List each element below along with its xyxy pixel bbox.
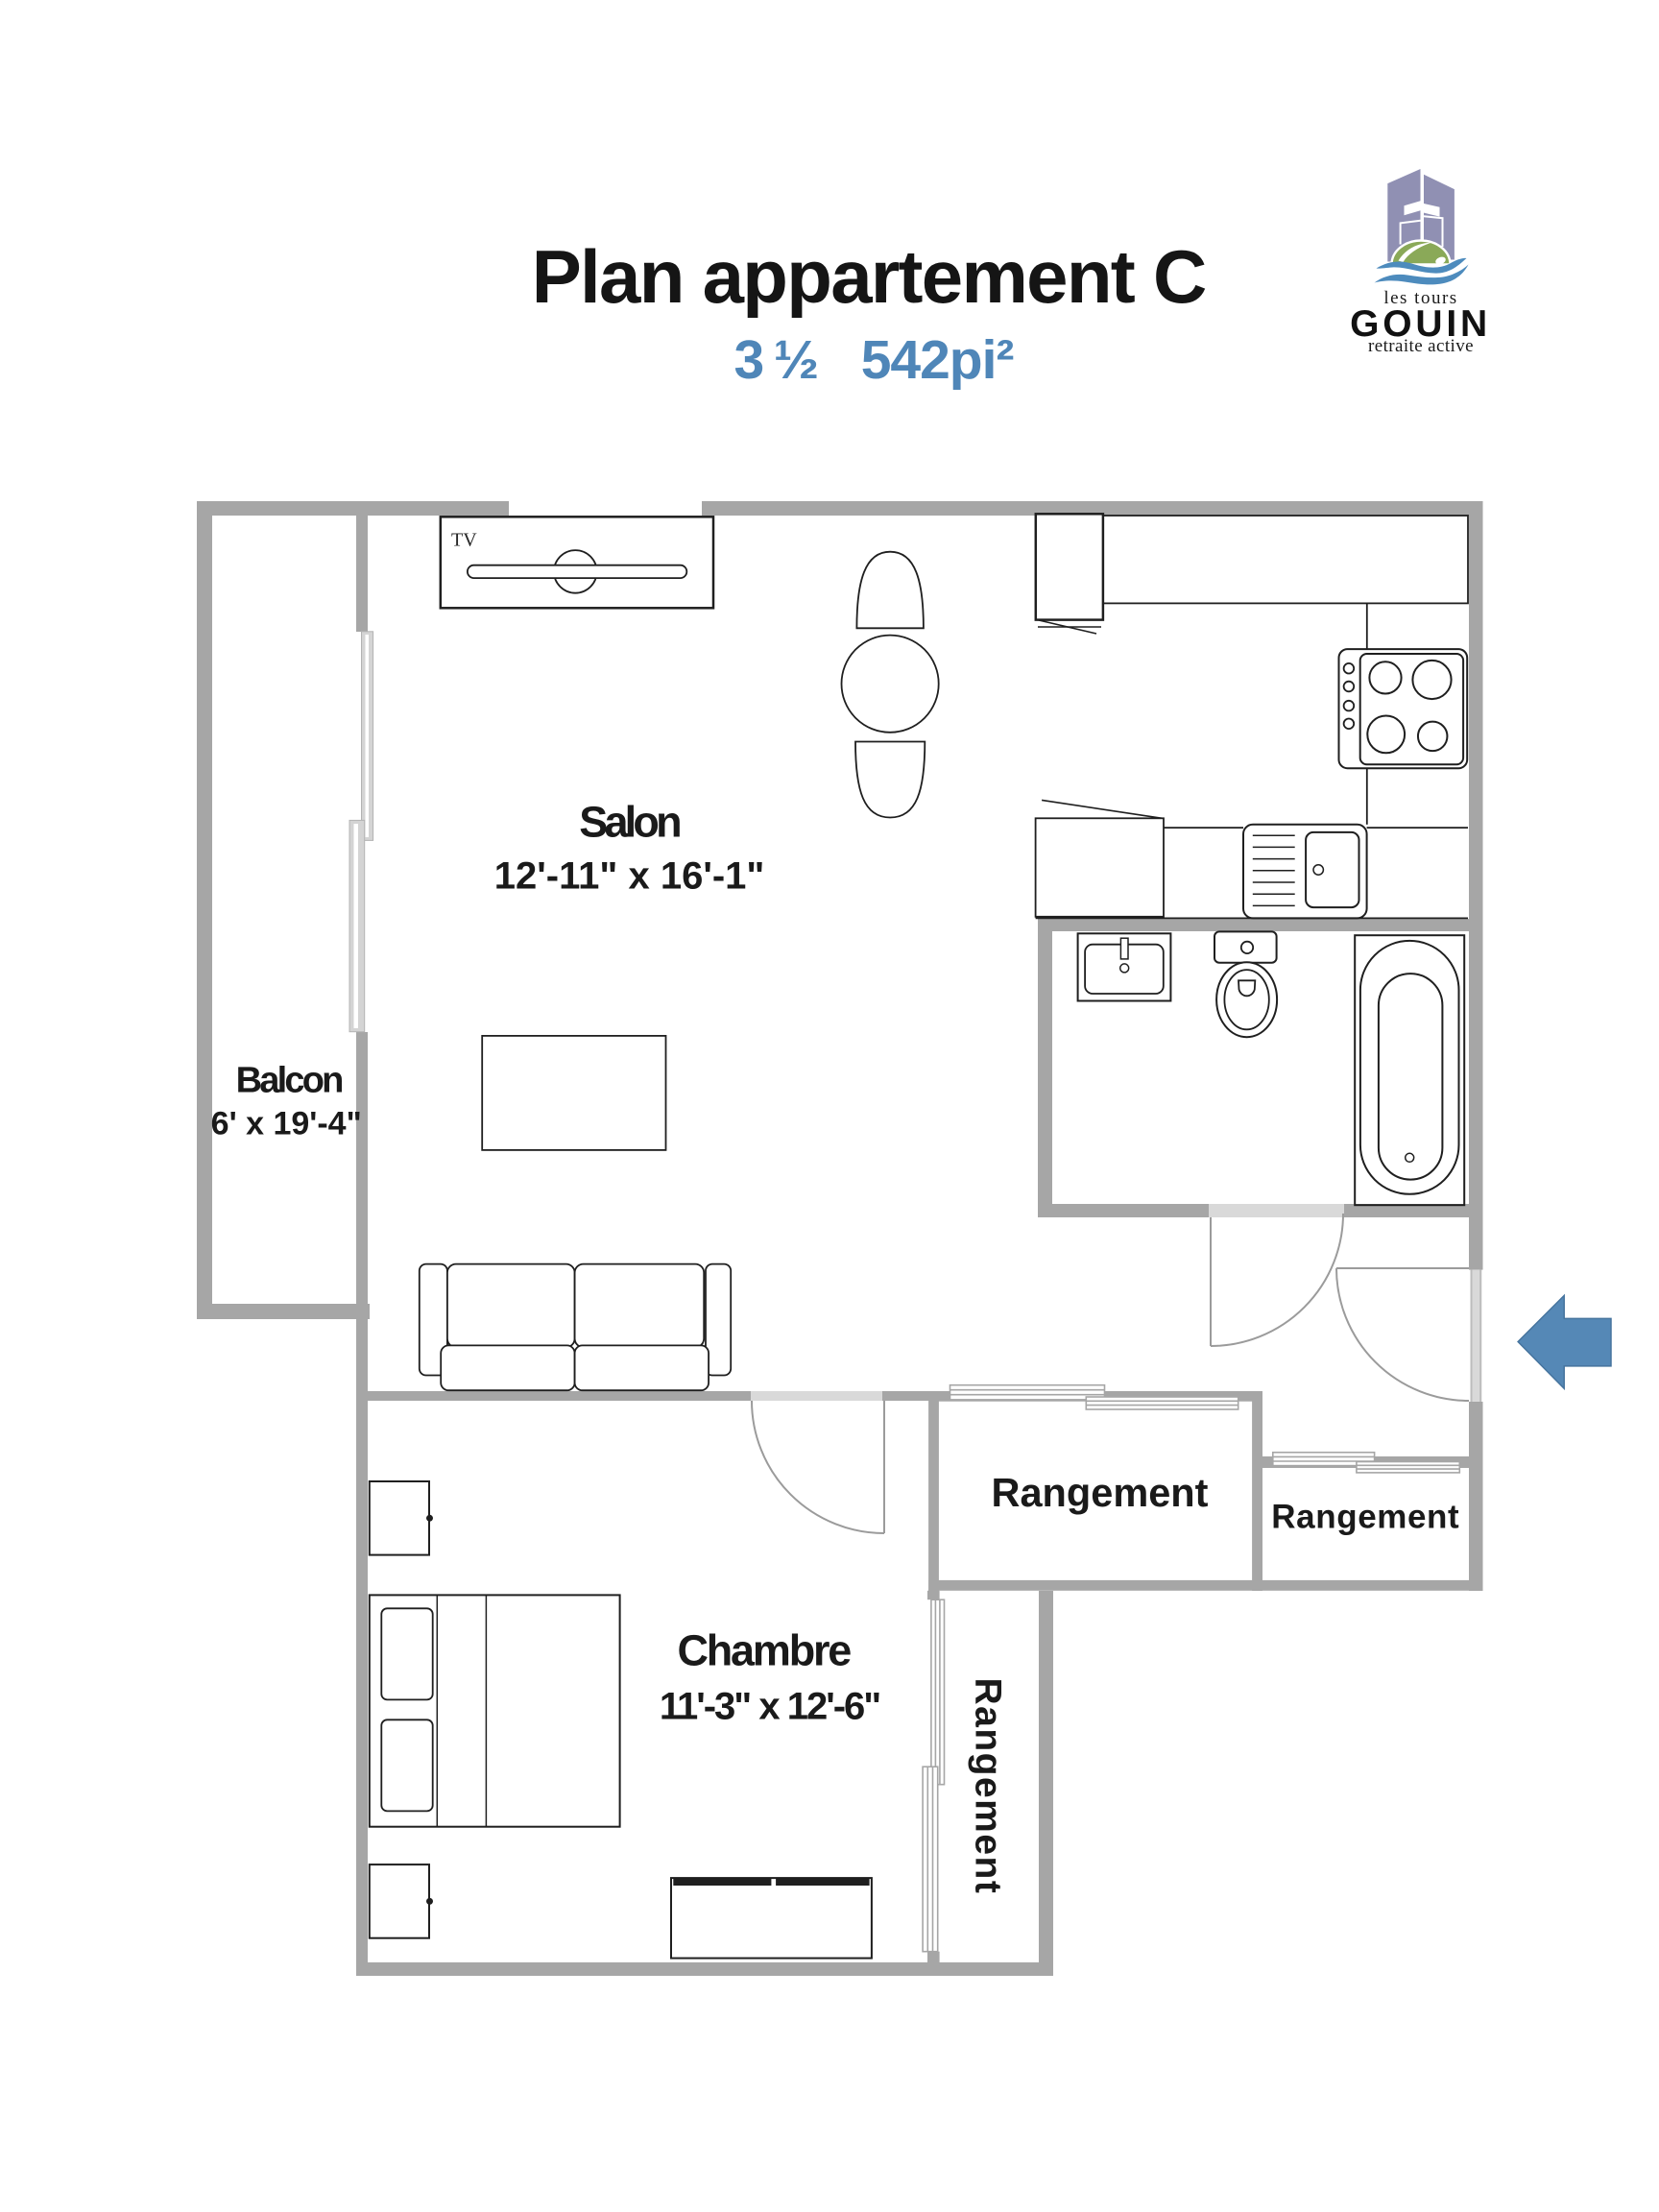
svg-text:Chambre: Chambre [677,1625,851,1674]
svg-text:11'-3" x 12'-6": 11'-3" x 12'-6" [660,1685,879,1727]
svg-text:retraite active: retraite active [1368,336,1474,356]
svg-text:6' x 19'-4": 6' x 19'-4" [211,1106,362,1142]
svg-text:Salon: Salon [579,798,680,847]
svg-text:12'-11" x 16'-1": 12'-11" x 16'-1" [494,854,765,897]
svg-text:Plan appartement C: Plan appartement C [532,234,1206,319]
svg-text:Balcon: Balcon [236,1061,342,1101]
svg-text:Rangement: Rangement [967,1677,1008,1894]
svg-text:TV: TV [451,530,477,551]
svg-text:Rangement: Rangement [1271,1499,1459,1536]
svg-text:3 ½ 542pi²: 3 ½ 542pi² [734,329,1014,391]
svg-text:Rangement: Rangement [992,1470,1209,1515]
